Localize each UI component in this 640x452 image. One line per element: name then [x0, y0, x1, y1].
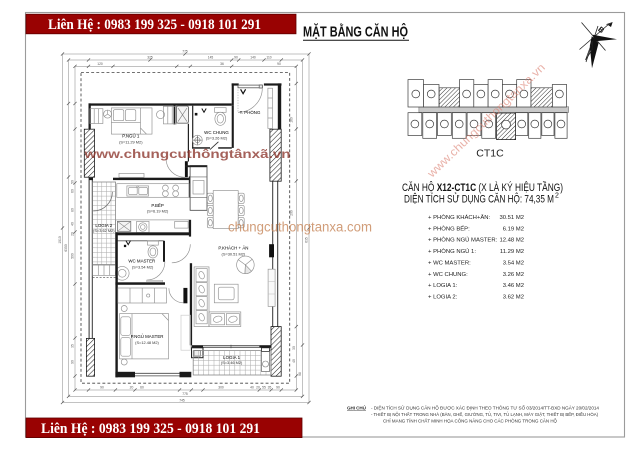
svg-text:60: 60: [140, 386, 144, 390]
svg-text:3.26 M2: 3.26 M2: [503, 272, 524, 278]
svg-text:CĂN HỘ X12-CT1C (X LÀ KÝ HIỆU: CĂN HỘ X12-CT1C (X LÀ KÝ HIỆU TẦNG): [402, 181, 563, 194]
svg-text:2: 2: [555, 193, 559, 200]
svg-text:Liên Hệ : 0983 199 325 - 0918: Liên Hệ : 0983 199 325 - 0918 101 291: [48, 17, 261, 33]
svg-text:745: 745: [179, 398, 185, 402]
svg-text:P.KHÁCH + ĂN: P.KHÁCH + ĂN: [218, 246, 248, 251]
svg-text:+ PHÒNG NGỦ 1:: + PHÒNG NGỦ 1:: [428, 248, 476, 255]
svg-text:120: 120: [97, 62, 103, 66]
svg-text:(S=6.19 M2): (S=6.19 M2): [147, 208, 169, 213]
svg-text:49: 49: [292, 359, 296, 363]
svg-text:80: 80: [71, 208, 75, 212]
svg-text:30.51 M2: 30.51 M2: [499, 215, 524, 221]
svg-text:P.BẾP: P.BẾP: [151, 203, 163, 208]
svg-text:35: 35: [268, 386, 272, 390]
svg-text:+ LOGIA 1:: + LOGIA 1:: [428, 283, 458, 289]
svg-text:55: 55: [262, 386, 266, 390]
svg-text:(S=12.48 M2): (S=12.48 M2): [135, 340, 159, 345]
svg-text:90: 90: [277, 62, 281, 66]
svg-text:36: 36: [220, 62, 224, 66]
svg-text:40: 40: [250, 386, 254, 390]
svg-text:35: 35: [71, 344, 75, 348]
svg-text:www.chungcuthôngtânxã.vn: www.chungcuthôngtânxã.vn: [83, 149, 290, 161]
svg-text:3.54 M2: 3.54 M2: [503, 260, 524, 266]
svg-text:WC CHUNG: WC CHUNG: [204, 130, 229, 135]
svg-text:- DIỆN TÍCH SỬ DỤNG CĂN HỘ ĐƯỢ: - DIỆN TÍCH SỬ DỤNG CĂN HỘ ĐƯỢC XÁC ĐỊNH…: [371, 404, 599, 411]
svg-text:+ PHÒNG BẾP:: + PHÒNG BẾP:: [428, 225, 470, 232]
svg-text:60: 60: [71, 189, 75, 193]
svg-text:(S=3.46 M2): (S=3.46 M2): [221, 360, 243, 365]
svg-text:CHỈ MANG TÍNH CHẤT MINH HỌA CÔ: CHỈ MANG TÍNH CHẤT MINH HỌA CÔNG NĂNG CH…: [383, 418, 557, 424]
svg-text:3.62 M2: 3.62 M2: [503, 295, 524, 301]
svg-text:+ WC CHUNG:: + WC CHUNG:: [428, 272, 468, 278]
svg-text:P.NGỦ 1: P.NGỦ 1: [122, 134, 140, 139]
svg-text:775: 775: [182, 392, 188, 396]
svg-text:40: 40: [71, 222, 75, 226]
svg-text:WC MASTER: WC MASTER: [128, 258, 155, 263]
svg-text:90: 90: [234, 56, 238, 60]
svg-text:635: 635: [305, 237, 309, 243]
svg-text:20: 20: [256, 386, 260, 390]
svg-text:98: 98: [298, 372, 302, 376]
svg-text:chungcuthongtanxa.com: chungcuthongtanxa.com: [228, 220, 372, 235]
svg-text:+ PHÒNG NGỦ MASTER:: + PHÒNG NGỦ MASTER:: [428, 237, 498, 244]
svg-text:300: 300: [218, 386, 224, 390]
svg-text:6350: 6350: [64, 244, 68, 252]
svg-text:90: 90: [71, 360, 75, 364]
svg-text:90: 90: [276, 386, 280, 390]
svg-text:MẶT BẰNG CĂN HỘ: MẶT BẰNG CĂN HỘ: [303, 23, 408, 41]
svg-text:T. PHÒNG: T. PHÒNG: [240, 110, 261, 115]
svg-text:GHI CHÚ: GHI CHÚ: [347, 405, 367, 411]
svg-text:+ WC MASTER:: + WC MASTER:: [428, 260, 471, 266]
svg-text:(S=11.29 M2): (S=11.29 M2): [119, 139, 143, 144]
svg-text:+ LOGIA 2:: + LOGIA 2:: [428, 295, 458, 301]
svg-text:20: 20: [71, 232, 75, 236]
svg-text:110: 110: [266, 56, 271, 60]
svg-text:Liên Hệ : 0983 199 325 - 0918: Liên Hệ : 0983 199 325 - 0918 101 291: [41, 421, 260, 437]
svg-text:325: 325: [147, 56, 153, 60]
svg-text:CT1C: CT1C: [476, 148, 504, 160]
svg-text:20: 20: [130, 386, 134, 390]
svg-text:12.48 M2: 12.48 M2: [499, 238, 524, 244]
svg-text:90: 90: [100, 386, 104, 390]
svg-text:145: 145: [208, 56, 214, 60]
svg-text:DIỆN TÍCH SỬ DỤNG CĂN HỘ: 74,3: DIỆN TÍCH SỬ DỤNG CĂN HỘ: 74,35 M: [404, 193, 554, 206]
svg-text:6.19 M2: 6.19 M2: [503, 226, 524, 232]
svg-text:P.NGỦ MASTER: P.NGỦ MASTER: [131, 334, 164, 339]
svg-text:(S=3.54 M2): (S=3.54 M2): [132, 265, 154, 270]
svg-text:30: 30: [292, 346, 296, 350]
svg-text:11.29 M2: 11.29 M2: [500, 249, 524, 255]
svg-text:(S=3.62 M2): (S=3.62 M2): [93, 228, 115, 233]
svg-text:500: 500: [71, 253, 75, 259]
svg-text:(S=3.26 M2): (S=3.26 M2): [206, 135, 228, 140]
svg-text:775: 775: [182, 50, 188, 54]
svg-text:(S=30.51 M2): (S=30.51 M2): [222, 251, 246, 256]
svg-text:- THIẾT BỊ NỘI THẤT TRONG NHÀ: - THIẾT BỊ NỘI THẤT TRONG NHÀ (BÀN, GHẾ,…: [371, 411, 598, 417]
svg-text:140: 140: [250, 56, 256, 60]
svg-text:1010: 1010: [58, 236, 62, 244]
svg-text:+ PHÒNG KHÁCH+ĂN:: + PHÒNG KHÁCH+ĂN:: [428, 214, 491, 221]
svg-text:50: 50: [71, 180, 75, 184]
svg-text:3.46 M2: 3.46 M2: [503, 283, 524, 289]
